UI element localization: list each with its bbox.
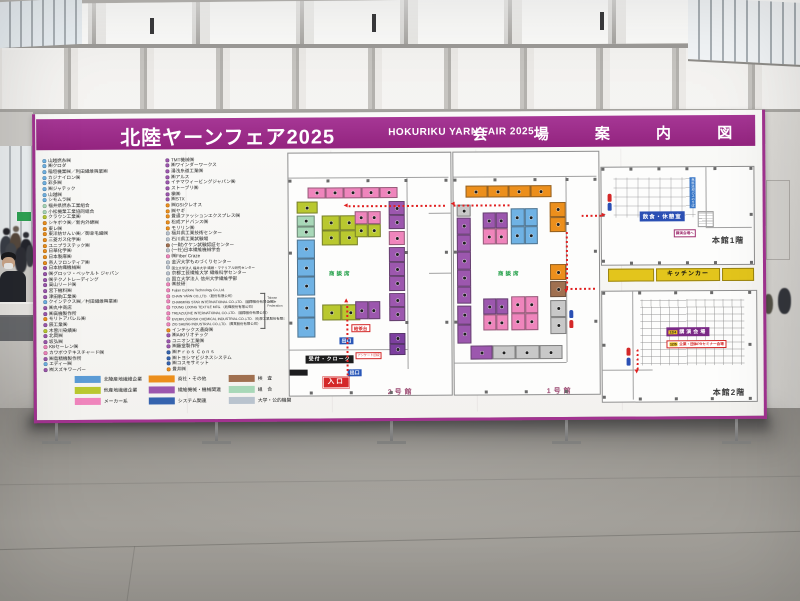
booth-cell: [297, 277, 315, 296]
booth-block: [483, 298, 508, 314]
category-bullet: [166, 260, 170, 264]
kitchen-car-bar: キッチンカー: [656, 268, 720, 281]
tea-station-label: 給茶台: [351, 324, 370, 332]
category-bullet: [43, 323, 47, 327]
booth-number-dot: [496, 190, 499, 193]
booth-number-dot: [557, 271, 560, 274]
booth-number-dot: [396, 348, 399, 351]
category-bullet: [166, 187, 170, 191]
column-marker: [566, 222, 569, 225]
pr-seminar-label: 12/5 企業・団体PRセミナー会場: [666, 340, 726, 348]
column-marker: [750, 261, 753, 264]
booth-number-dot: [557, 324, 560, 327]
legend-item: 大学・公的機関: [229, 397, 289, 404]
category-bullet: [43, 227, 47, 231]
category-bullet: [43, 312, 47, 316]
booth-number-dot: [387, 191, 390, 194]
route-arrow: [344, 203, 348, 207]
main-building-1f-name: 本館1階: [712, 235, 745, 246]
category-bullet: [43, 317, 47, 321]
booth-cell: [550, 300, 566, 317]
crowd-person: [13, 226, 19, 232]
route-dotted-line: [636, 348, 638, 370]
category-bullet: [42, 165, 46, 169]
category-bullet: [166, 226, 170, 230]
column-marker: [749, 397, 752, 400]
booth-number-dot: [395, 207, 398, 210]
category-bullet: [167, 362, 171, 366]
column-marker: [288, 180, 291, 183]
category-bullet: [43, 221, 47, 225]
column-marker: [602, 260, 605, 263]
booth-cell: [389, 231, 405, 245]
category-bullet: [166, 243, 170, 247]
column-marker: [593, 178, 596, 181]
door: [766, 180, 790, 260]
header-band: 北陸ヤーンフェア2025 HOKURIKU YARN FAIR 2025 会 場…: [36, 115, 755, 150]
column-marker: [685, 167, 688, 170]
booth-cell: [539, 345, 562, 359]
column-marker: [601, 168, 604, 171]
route-dotted-line: [582, 215, 602, 217]
column-marker: [289, 322, 292, 325]
category-bullet: [166, 294, 170, 298]
category-bullet: [166, 232, 170, 236]
booth-number-dot: [360, 309, 363, 312]
booth-block: [483, 314, 508, 330]
booth-number-dot: [549, 351, 552, 354]
category-bullet: [43, 249, 47, 253]
column-marker: [711, 397, 714, 400]
exhibition-hall-photo: 北陸ヤーンフェア2025 HOKURIKU YARN FAIR 2025 会 場…: [0, 0, 800, 601]
category-bullet: [43, 329, 47, 333]
ceiling-beam: [0, 44, 800, 48]
booth-number-dot: [475, 190, 478, 193]
category-bullet: [43, 193, 47, 197]
booth-cell: [322, 215, 340, 230]
column-marker: [748, 343, 751, 346]
booth-cell: [389, 333, 405, 344]
category-bullet: [165, 164, 169, 168]
column-marker: [405, 251, 408, 254]
column-marker: [525, 390, 528, 393]
column-marker: [748, 291, 751, 294]
booth-block: [550, 264, 566, 280]
table-shadow: [0, 315, 33, 341]
booth-cell: [525, 296, 539, 313]
wall-line: [632, 292, 634, 400]
booth-number-dot: [315, 191, 318, 194]
booth-number-dot: [305, 285, 308, 288]
category-bullet: [167, 368, 171, 372]
seated-person-body: [0, 271, 26, 305]
map-main-building-1f: 飲食・休憩室 無料送迎バスのりば 講演会場へ 本館1階: [600, 166, 755, 266]
column-marker: [445, 251, 448, 254]
column-marker: [289, 252, 292, 255]
map-hall1: 商談席 1号館: [452, 151, 600, 396]
seminar-date-badge: 12/5: [669, 342, 678, 346]
booth-block: [389, 293, 405, 321]
clerestory-windows-left: [0, 0, 82, 48]
booth-block: [389, 247, 405, 291]
category-bullet: [166, 283, 170, 287]
booth-number-dot: [526, 351, 529, 354]
restroom-female-icon: [626, 348, 630, 356]
booth-number-dot: [347, 236, 350, 239]
venue-map-title: 会 場 案 内 図: [472, 122, 753, 145]
booth-number-dot: [516, 216, 519, 219]
column-marker: [602, 292, 605, 295]
booth-number-dot: [349, 311, 352, 314]
category-bullet: [43, 216, 47, 220]
main-building-2f-name: 本館2階: [713, 387, 746, 398]
booth-number-dot: [306, 206, 309, 209]
booth-number-dot: [304, 266, 307, 269]
booth-block: [492, 345, 562, 359]
booth-cell: [457, 205, 471, 217]
category-bullet: [43, 295, 47, 299]
wall-line: [453, 176, 596, 178]
column-marker: [405, 321, 408, 324]
booth-number-dot: [329, 236, 332, 239]
booth-cell: [297, 318, 315, 338]
category-bullet: [166, 203, 170, 207]
crowd-person: [3, 228, 10, 235]
booth-block: [389, 231, 405, 245]
booth-number-dot: [530, 234, 533, 237]
category-bullet: [44, 357, 48, 361]
booth-cell: [297, 227, 315, 238]
legend-swatch: [75, 387, 101, 394]
booth-number-dot: [557, 307, 560, 310]
booth-block: [297, 201, 318, 213]
booth-number-dot: [516, 303, 519, 306]
booth-block: [511, 208, 538, 226]
booth-cell: [496, 298, 509, 314]
booth-cell: [470, 345, 492, 359]
booth-cell: [496, 314, 509, 330]
legend-label: 他産地繊維企業: [104, 387, 138, 394]
booth-number-dot: [530, 320, 533, 323]
booth-cell: [511, 208, 525, 226]
category-bullet: [42, 159, 46, 163]
floor-joint: [0, 476, 800, 486]
category-bullet: [43, 346, 47, 350]
column-marker: [565, 390, 568, 393]
category-bullet: [166, 328, 170, 332]
category-bullet: [43, 187, 47, 191]
booth-number-dot: [557, 288, 560, 291]
taiwan-group-bracket: [260, 293, 265, 329]
booth-block: [297, 240, 315, 296]
column-marker: [493, 178, 496, 181]
legend-label: 大学・公的機関: [258, 397, 292, 404]
venue-map-signboard: 北陸ヤーンフェア2025 HOKURIKU YARN FAIR 2025 会 場…: [32, 110, 767, 423]
booth-number-dot: [396, 337, 399, 340]
wall-line: [429, 273, 451, 274]
category-bullet: [43, 255, 47, 259]
column-marker: [594, 250, 597, 253]
route-arrow: [564, 289, 568, 293]
column-marker: [445, 321, 448, 324]
kitchen-car-bar: [722, 268, 754, 281]
legend-item: システム関連: [149, 397, 229, 404]
booth-number-dot: [487, 219, 490, 222]
legend-item: 組 合: [229, 386, 289, 393]
route-arrow: [451, 202, 455, 206]
booth-number-dot: [373, 309, 376, 312]
booth-cell: [457, 306, 471, 325]
column-marker: [453, 179, 456, 182]
column-marker: [674, 291, 677, 294]
booth-block: [355, 224, 381, 237]
legend-swatch: [149, 376, 175, 383]
category-bullet: [43, 289, 47, 293]
booth-cell: [322, 230, 340, 245]
route-arrow: [602, 213, 606, 217]
restroom-female-icon: [569, 320, 573, 328]
booth-cell: [297, 298, 315, 318]
booth-cell: [368, 301, 381, 319]
survey-collection-label: アンケート回収: [356, 352, 382, 359]
exhibitor-item: ㈲スズキワーパー: [44, 367, 166, 373]
category-bullet: [166, 339, 170, 343]
booth-cell: [550, 264, 566, 280]
legend-swatch: [229, 375, 255, 382]
route-dotted-line: [349, 205, 447, 207]
legend-swatch: [75, 398, 101, 405]
booth-number-dot: [501, 321, 504, 324]
booth-cell: [389, 262, 405, 277]
column-marker: [638, 292, 641, 295]
category-bullet: [166, 345, 170, 349]
booth-number-dot: [462, 242, 465, 245]
skylight-panels-row1: [0, 0, 800, 50]
booth-number-dot: [462, 225, 465, 228]
category-bullet: [166, 220, 170, 224]
category-bullet: [43, 238, 47, 242]
lecture-date-badge: 12/4: [668, 330, 677, 334]
booth-number-dot: [305, 326, 308, 329]
booth-block: [308, 187, 398, 199]
booth-cell: [457, 235, 471, 252]
booth-number-dot: [529, 216, 532, 219]
category-bullet: [43, 300, 47, 304]
booth-block: [297, 216, 315, 238]
category-bullet: [167, 356, 171, 360]
map-main-building-2f: 12/4 講演会場 12/5 企業・団体PRセミナー会場 本館2階: [601, 290, 758, 403]
column-marker: [657, 167, 660, 170]
booth-cell: [487, 185, 509, 197]
route-dotted-line: [566, 288, 597, 290]
booth-cell: [530, 185, 552, 197]
column-marker: [404, 179, 407, 182]
column-marker: [686, 261, 689, 264]
negotiation-seats-label: 商談席: [329, 269, 352, 277]
exhibitor-name: ㈱技研: [172, 282, 186, 288]
floor-joint: [126, 546, 136, 601]
booth-number-dot: [329, 221, 332, 224]
category-bullet: [44, 368, 48, 372]
category-bullet: [43, 340, 47, 344]
legend-swatch: [149, 387, 175, 394]
booth-number-dot: [488, 321, 491, 324]
booth-cell: [297, 216, 315, 227]
wall-line: [705, 167, 706, 227]
column-marker: [366, 179, 369, 182]
exit-label: 出口: [348, 369, 362, 376]
booth-cell: [368, 224, 381, 237]
category-bullet: [166, 266, 170, 270]
booth-cell: [389, 293, 405, 307]
column-marker: [594, 320, 597, 323]
background-left-crowd: [0, 112, 33, 418]
category-bullet: [43, 278, 47, 282]
booth-number-dot: [462, 209, 465, 212]
category-bullet: [166, 317, 170, 321]
exit-sign-green: [17, 212, 31, 221]
booth-number-dot: [369, 191, 372, 194]
booth-number-dot: [463, 294, 466, 297]
booth-cell: [524, 208, 538, 226]
booth-block: [511, 296, 538, 313]
booth-cell: [389, 344, 405, 355]
booth-number-dot: [518, 190, 521, 193]
booth-block: [322, 230, 358, 245]
wall-line: [455, 362, 567, 364]
hanging-light: [150, 18, 154, 34]
restroom-male-icon: [569, 310, 573, 318]
booth-block: [483, 212, 508, 228]
booth-number-dot: [304, 220, 307, 223]
booth-number-dot: [463, 276, 466, 279]
booth-cell: [457, 269, 471, 286]
exhibitor-name: ㈲スズキワーパー: [49, 367, 86, 373]
booth-block: [389, 333, 405, 355]
column-marker: [639, 398, 642, 401]
restroom-male-icon: [627, 358, 631, 366]
pr-seminar-text: 企業・団体PRセミナー会場: [679, 342, 724, 347]
category-bullet: [43, 204, 47, 208]
booth-number-dot: [395, 221, 398, 224]
category-bullet: [165, 170, 169, 174]
exhibitor-name: Fujian Cyclone Technology Co.,Ltd.: [172, 288, 225, 292]
booth-number-dot: [305, 306, 308, 309]
category-bullet: [43, 266, 47, 270]
booth-number-dot: [304, 247, 307, 250]
booth-cell: [389, 215, 405, 229]
column-marker: [749, 167, 752, 170]
category-bullet: [166, 209, 170, 213]
exhibitor-name: CHAIN YARN CO.,LTD.（股份有限公司）: [172, 293, 235, 298]
category-bullet: [43, 334, 47, 338]
hanging-light: [600, 12, 604, 30]
column-marker: [485, 390, 488, 393]
booth-cell: [550, 217, 566, 232]
legend-item: メーカー系: [75, 398, 149, 405]
legend-label: 組 合: [258, 386, 272, 393]
kitchen-car-bar: [608, 268, 654, 281]
category-bullet: [165, 175, 169, 179]
to-lecture-hall-label: 講演会場へ: [674, 229, 696, 237]
legend-label: 商社・その他: [178, 375, 207, 382]
column-marker: [714, 261, 717, 264]
booth-cell: [492, 345, 515, 359]
booth-cell: [362, 187, 380, 198]
booth-cell: [511, 313, 525, 330]
category-bullet: [166, 254, 170, 258]
booth-cell: [344, 187, 362, 198]
booth-block: [457, 218, 472, 304]
booth-block: [466, 185, 552, 198]
booth-cell: [495, 228, 508, 244]
seated-person-mask: [4, 263, 13, 269]
restroom-male-icon: [608, 203, 612, 211]
category-bullet: [166, 237, 170, 241]
category-bullet: [166, 322, 170, 326]
column-marker: [444, 179, 447, 182]
booth-cell: [355, 301, 368, 319]
category-bullet: [44, 363, 48, 367]
booth-cell: [389, 307, 405, 321]
category-bullet: [44, 351, 48, 355]
booth-number-dot: [396, 268, 399, 271]
category-bullet: [166, 311, 170, 315]
column-marker: [713, 167, 716, 170]
column-marker: [533, 178, 536, 181]
category-bullet: [166, 215, 170, 219]
booth-cell: [524, 226, 538, 244]
legend-label: 検 査: [258, 375, 272, 382]
board-support-leg: [735, 416, 738, 442]
column-marker: [326, 179, 329, 182]
skylight-panels-row2: [0, 48, 800, 110]
booth-number-dot: [539, 190, 542, 193]
booth-cell: [389, 247, 405, 262]
booth-number-dot: [517, 320, 520, 323]
map-hall2: 商談席 給茶台 出口 受付・クローク アンケート回収 出口 入口 2号館: [287, 152, 452, 397]
legend: 北陸産地繊維企業他産地繊維企業メーカー系商社・その他繊維機械・機械関連システム関…: [75, 373, 289, 407]
column-marker: [750, 213, 753, 216]
exhibitor-list-col1: 山越撚糸㈱㈱クロダ稲垣機業㈱／利田繊維興業㈱カジナイロン㈱彩多㈱㈱ジャテック山越…: [42, 157, 165, 373]
exhibitor-name: EVERFLOURISH CHEMICAL INDUSTRIAL CO.,LTD…: [172, 315, 285, 321]
column-marker: [603, 396, 606, 399]
legend-item: 繊維機械・機械関連: [149, 386, 229, 393]
booth-number-dot: [330, 311, 333, 314]
booth-cell: [457, 218, 471, 235]
legend-swatch: [229, 397, 255, 404]
booth-number-dot: [463, 333, 466, 336]
booth-number-dot: [396, 282, 399, 285]
category-bullet: [166, 198, 170, 202]
legend-item: 検 査: [229, 375, 289, 382]
booth-block: [483, 228, 508, 244]
entrance-label: 入口: [324, 377, 349, 387]
booth-block: [457, 306, 471, 344]
legend-item: 他産地繊維企業: [75, 387, 149, 394]
floor-joint: [0, 531, 800, 551]
rest-area-label: 飲食・休憩室: [640, 211, 685, 221]
booth-cell: [297, 201, 318, 213]
booth-cell: [466, 185, 488, 197]
category-bullet: [43, 272, 47, 276]
booth-block: [511, 226, 538, 244]
booth-number-dot: [373, 216, 376, 219]
booth-cell: [389, 276, 405, 291]
category-bullet: [166, 288, 170, 292]
category-bullet: [167, 351, 171, 355]
ceiling: [0, 0, 800, 118]
